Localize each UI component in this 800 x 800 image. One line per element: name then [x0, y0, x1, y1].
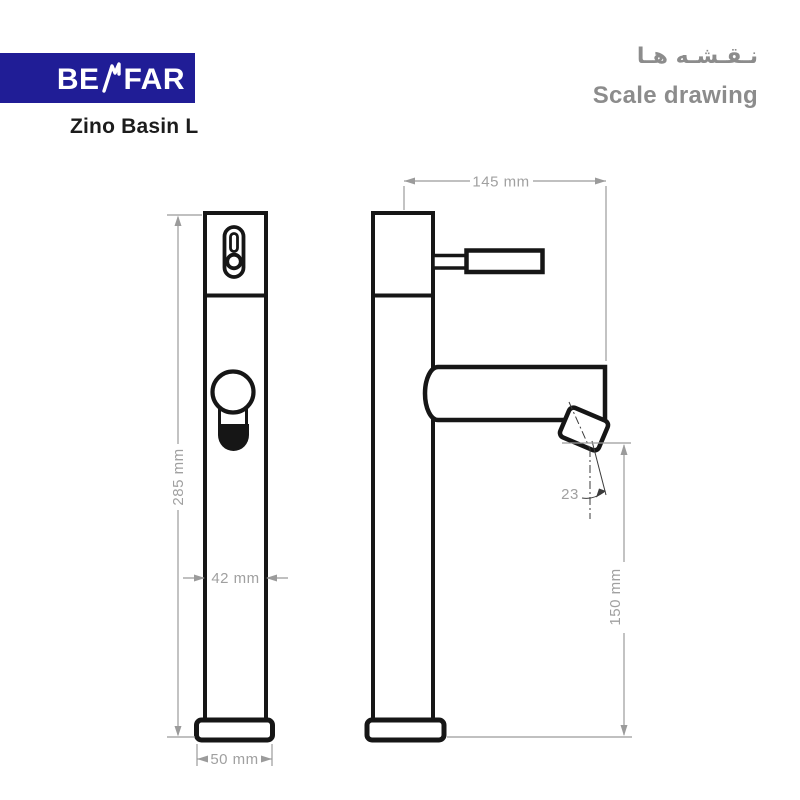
dim-angle-label: 23: [561, 486, 579, 503]
keyhole-slot: [231, 234, 238, 252]
dim-base-width-label: 50 mm: [210, 751, 258, 768]
dim-spout-height-label: 150 mm: [607, 568, 624, 625]
side-view: [367, 213, 610, 740]
handle-rod: [433, 256, 469, 269]
scale-drawing-canvas: 145 mm 285 mm 42 mm: [0, 0, 800, 800]
dim-total-height-label: 285 mm: [170, 448, 187, 505]
front-base: [197, 720, 273, 740]
scale-drawing-page: BEFAR Zino Basin L نـقـشـه هـا Scale dra…: [0, 0, 800, 800]
dim-base-width: 50 mm: [197, 744, 272, 768]
handle-lever: [467, 251, 543, 273]
front-view: [197, 213, 273, 740]
dim-total-height: 285 mm: [167, 215, 202, 737]
keyhole-hole: [227, 255, 241, 269]
side-body: [373, 213, 433, 722]
dim-body-width: 42 mm: [183, 570, 288, 587]
side-base: [367, 720, 444, 740]
front-body: [205, 213, 266, 722]
dim-spout-reach-label: 145 mm: [472, 174, 529, 191]
dim-body-width-label: 42 mm: [211, 570, 259, 587]
